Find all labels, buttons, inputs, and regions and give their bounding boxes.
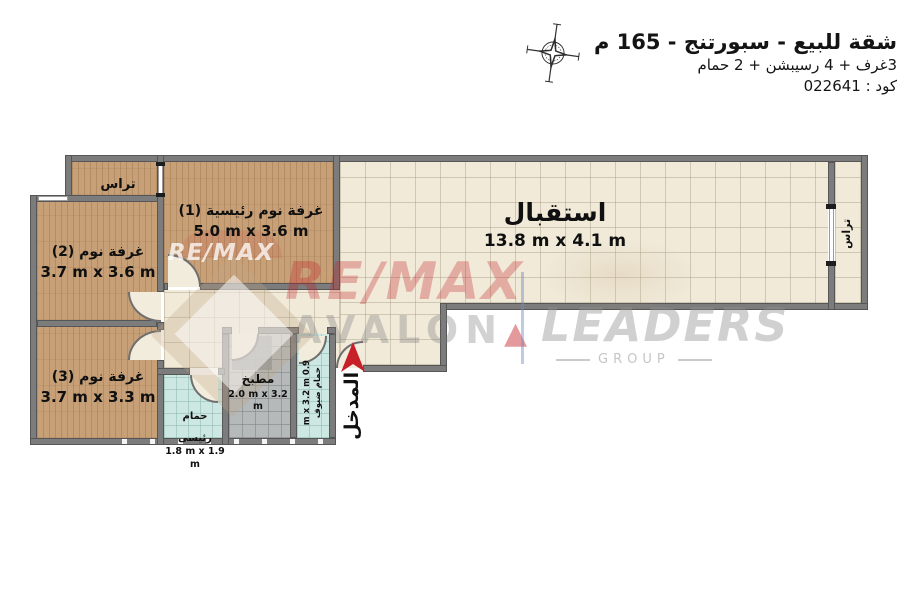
- floor-plan-page: RE/MAX RE/MAX AVALON▲ LEADERS GROUP استق…: [0, 0, 900, 599]
- wall-segment: [861, 155, 868, 310]
- room-label-terrace-top-left: تراس: [80, 172, 156, 194]
- room-name-reception: استقبال: [504, 198, 607, 227]
- window-cap: [156, 193, 165, 197]
- listing-code: كود : 022641: [594, 76, 897, 96]
- wall-segment: [327, 327, 336, 334]
- listing-title: شقة للبيع - سبورتنج - 165 م: [594, 29, 897, 55]
- wall-segment: [200, 283, 340, 290]
- room-dims-guest-bathroom: 0.9 m x 3.2 m: [302, 360, 313, 425]
- watermark-group-text: GROUP: [598, 352, 670, 367]
- entrance-arrow-icon: [341, 342, 365, 372]
- window-terrace-top-left: [158, 165, 163, 195]
- wall-segment: [218, 368, 225, 375]
- room-dims-kitchen: 2.0 m x 3.2 m: [226, 389, 290, 415]
- room-name-master-bedroom: غرفة نوم رئيسية (1): [179, 203, 324, 219]
- wall-segment: [157, 368, 190, 375]
- wall-segment: [30, 195, 37, 445]
- room-label-kitchen: مطبخ 2.0 m x 3.2 m: [226, 367, 290, 414]
- vent-tick: [318, 439, 323, 444]
- entrance-label: المدخل: [336, 371, 370, 441]
- wall-segment: [828, 262, 835, 310]
- room-dims-bedroom-2: 3.7 m x 3.6 m: [36, 262, 160, 282]
- room-label-terrace-right: تراس: [832, 206, 862, 262]
- window-cap: [156, 162, 165, 166]
- listing-header: شقة للبيع - سبورتنج - 165 م 3غرف + 4 رسي…: [594, 29, 897, 96]
- window-bedroom-2: [38, 196, 68, 201]
- room-label-master-bedroom: غرفة نوم رئيسية (1) 5.0 m x 3.6 m: [165, 199, 337, 241]
- vent-tick: [122, 439, 127, 444]
- vent-tick: [234, 439, 239, 444]
- wall-segment: [440, 303, 868, 310]
- wall-segment: [440, 303, 447, 372]
- room-name-master-bathroom: حمام رئيسى: [178, 411, 212, 444]
- wall-segment: [37, 320, 157, 327]
- wall-segment: [363, 365, 447, 372]
- group-dash: [556, 359, 590, 361]
- group-dash: [678, 359, 712, 361]
- room-dims-bedroom-3: 3.7 m x 3.3 m: [36, 387, 160, 407]
- room-name-kitchen: مطبخ: [242, 372, 275, 386]
- wall-segment: [65, 155, 868, 162]
- room-name-bedroom-3: غرفة نوم (3): [52, 369, 145, 385]
- compass-icon: [524, 20, 582, 86]
- wall-segment: [258, 327, 299, 334]
- room-name-guest-bathroom: حمام ضيوف: [313, 360, 324, 425]
- vent-tick: [262, 439, 267, 444]
- room-dims-master-bathroom: 1.8 m x 1.9 m: [164, 446, 226, 472]
- vent-tick: [290, 439, 295, 444]
- watermark-group: GROUP: [556, 352, 712, 367]
- room-dims-reception: 13.8 m x 4.1 m: [440, 230, 670, 253]
- room-label-master-bathroom: حمام رئيسى 1.8 m x 1.9 m: [164, 403, 226, 472]
- vent-tick: [150, 439, 155, 444]
- wall-segment: [157, 322, 164, 330]
- room-label-bedroom-2: غرفة نوم (2) 3.7 m x 3.6 m: [36, 240, 160, 282]
- avalon-triangle-icon: ▲: [504, 316, 527, 351]
- listing-subtitle: 3غرف + 4 رسيبشن + 2 حمام: [594, 55, 897, 75]
- room-name-terrace-top-left: تراس: [100, 177, 135, 192]
- wall-segment: [222, 327, 232, 334]
- room-name-terrace-right: تراس: [840, 219, 854, 249]
- room-label-bedroom-3: غرفة نوم (3) 3.7 m x 3.3 m: [36, 365, 160, 407]
- room-name-bedroom-2: غرفة نوم (2): [52, 244, 145, 260]
- wall-segment: [828, 162, 835, 208]
- room-label-guest-bathroom: 0.9 m x 3.2 m حمام ضيوف: [294, 350, 332, 436]
- room-label-reception: استقبال 13.8 m x 4.1 m: [440, 196, 670, 253]
- entrance-label-text: المدخل: [341, 372, 365, 440]
- room-dims-master-bedroom: 5.0 m x 3.6 m: [165, 221, 337, 241]
